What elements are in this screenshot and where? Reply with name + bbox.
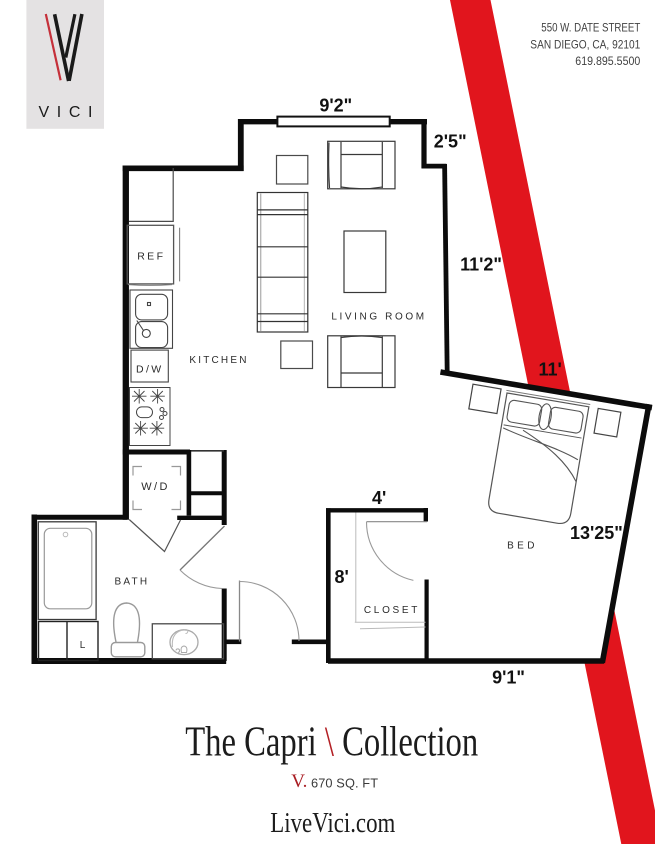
svg-text:The Capri \ Collection: The Capri \ Collection — [185, 720, 478, 766]
svg-text:BED: BED — [507, 540, 538, 551]
svg-text:REF: REF — [137, 251, 165, 263]
svg-text:D/W: D/W — [136, 364, 164, 376]
svg-text:13'25": 13'25" — [570, 523, 623, 543]
svg-text:LiveVici.com: LiveVici.com — [270, 808, 395, 839]
svg-text:KITCHEN: KITCHEN — [189, 355, 248, 366]
svg-text:8': 8' — [335, 567, 349, 587]
svg-text:LIVING ROOM: LIVING ROOM — [331, 312, 426, 323]
svg-text:11': 11' — [539, 360, 562, 380]
svg-text:9'1": 9'1" — [492, 668, 525, 688]
svg-text:SAN DIEGO, CA, 92101: SAN DIEGO, CA, 92101 — [530, 37, 640, 51]
svg-text:BATH: BATH — [115, 576, 150, 587]
svg-text:9'2": 9'2" — [319, 96, 352, 116]
svg-text:619.895.5500: 619.895.5500 — [575, 54, 640, 68]
svg-text:V.: V. — [291, 771, 307, 792]
svg-text:11'2": 11'2" — [460, 255, 502, 275]
svg-text:W/D: W/D — [141, 481, 170, 493]
svg-text:550 W. DATE STREET: 550 W. DATE STREET — [541, 20, 641, 34]
svg-text:4': 4' — [372, 488, 386, 508]
svg-text:670 SQ. FT: 670 SQ. FT — [311, 775, 378, 790]
svg-text:CLOSET: CLOSET — [364, 605, 420, 616]
svg-text:L: L — [80, 640, 86, 651]
svg-text:2'5": 2'5" — [434, 131, 467, 151]
svg-text:VICI: VICI — [39, 104, 101, 121]
